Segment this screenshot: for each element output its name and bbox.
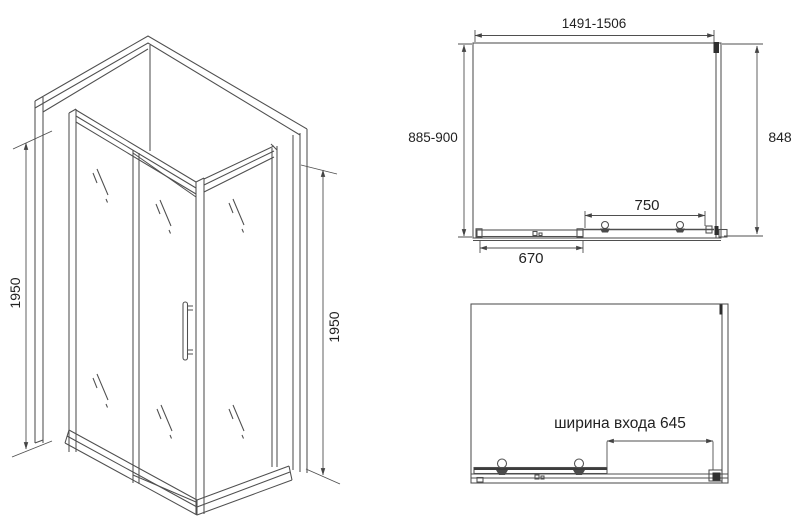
- entrance-width-label: ширина входа 645: [554, 415, 686, 432]
- open-door-track: [474, 459, 607, 482]
- roller-wheel: [677, 222, 684, 229]
- roller-wheel: [602, 222, 609, 229]
- plan-dimension-width: 1491-1506: [475, 16, 714, 42]
- wall-profile-top: [720, 305, 723, 315]
- wall-profile-top: [714, 42, 720, 53]
- plan-dimension-panel: 750: [585, 197, 705, 228]
- plan-dimension-depth-right: 848: [722, 44, 792, 236]
- roller-wheel: [575, 459, 584, 468]
- plan-depth-label: 885-900: [408, 130, 458, 145]
- iso-frame: [35, 36, 307, 514]
- fixed-door-panel: [477, 230, 583, 237]
- iso-height-right-label: 1950: [326, 311, 342, 342]
- plan-width-label: 1491-1506: [562, 16, 627, 31]
- iso-glass-sparkles: [93, 169, 244, 439]
- iso-height-left-label: 1950: [7, 277, 23, 308]
- plan-dimension-depth-left: 885-900: [408, 44, 472, 237]
- drawing-svg: 1950 1950: [0, 0, 800, 527]
- plan-door-track: [476, 222, 714, 238]
- plan-dimension-door: 670: [480, 241, 583, 267]
- plan-door-width-label: 670: [518, 250, 543, 267]
- iso-view: 1950 1950: [7, 36, 342, 515]
- iso-dimension-left: 1950: [7, 131, 52, 457]
- plan-view-closed: 1491-1506 885-900 848 750 670: [408, 16, 792, 267]
- wall-profile-corner: [713, 473, 721, 481]
- iso-base-tray: [35, 430, 292, 515]
- open-outline: [471, 304, 728, 483]
- plan-panel-width-label: 750: [634, 197, 659, 214]
- plan-outline: [473, 42, 727, 241]
- open-dimension-entrance: ширина входа 645: [554, 415, 713, 470]
- roller-wheel: [498, 459, 507, 468]
- technical-drawing: 1950 1950: [0, 0, 800, 527]
- iso-handle: [183, 302, 193, 360]
- wall-profile-bottom: [715, 226, 719, 235]
- plan-side-depth-label: 848: [768, 129, 792, 145]
- plan-view-open: ширина входа 645: [471, 304, 728, 483]
